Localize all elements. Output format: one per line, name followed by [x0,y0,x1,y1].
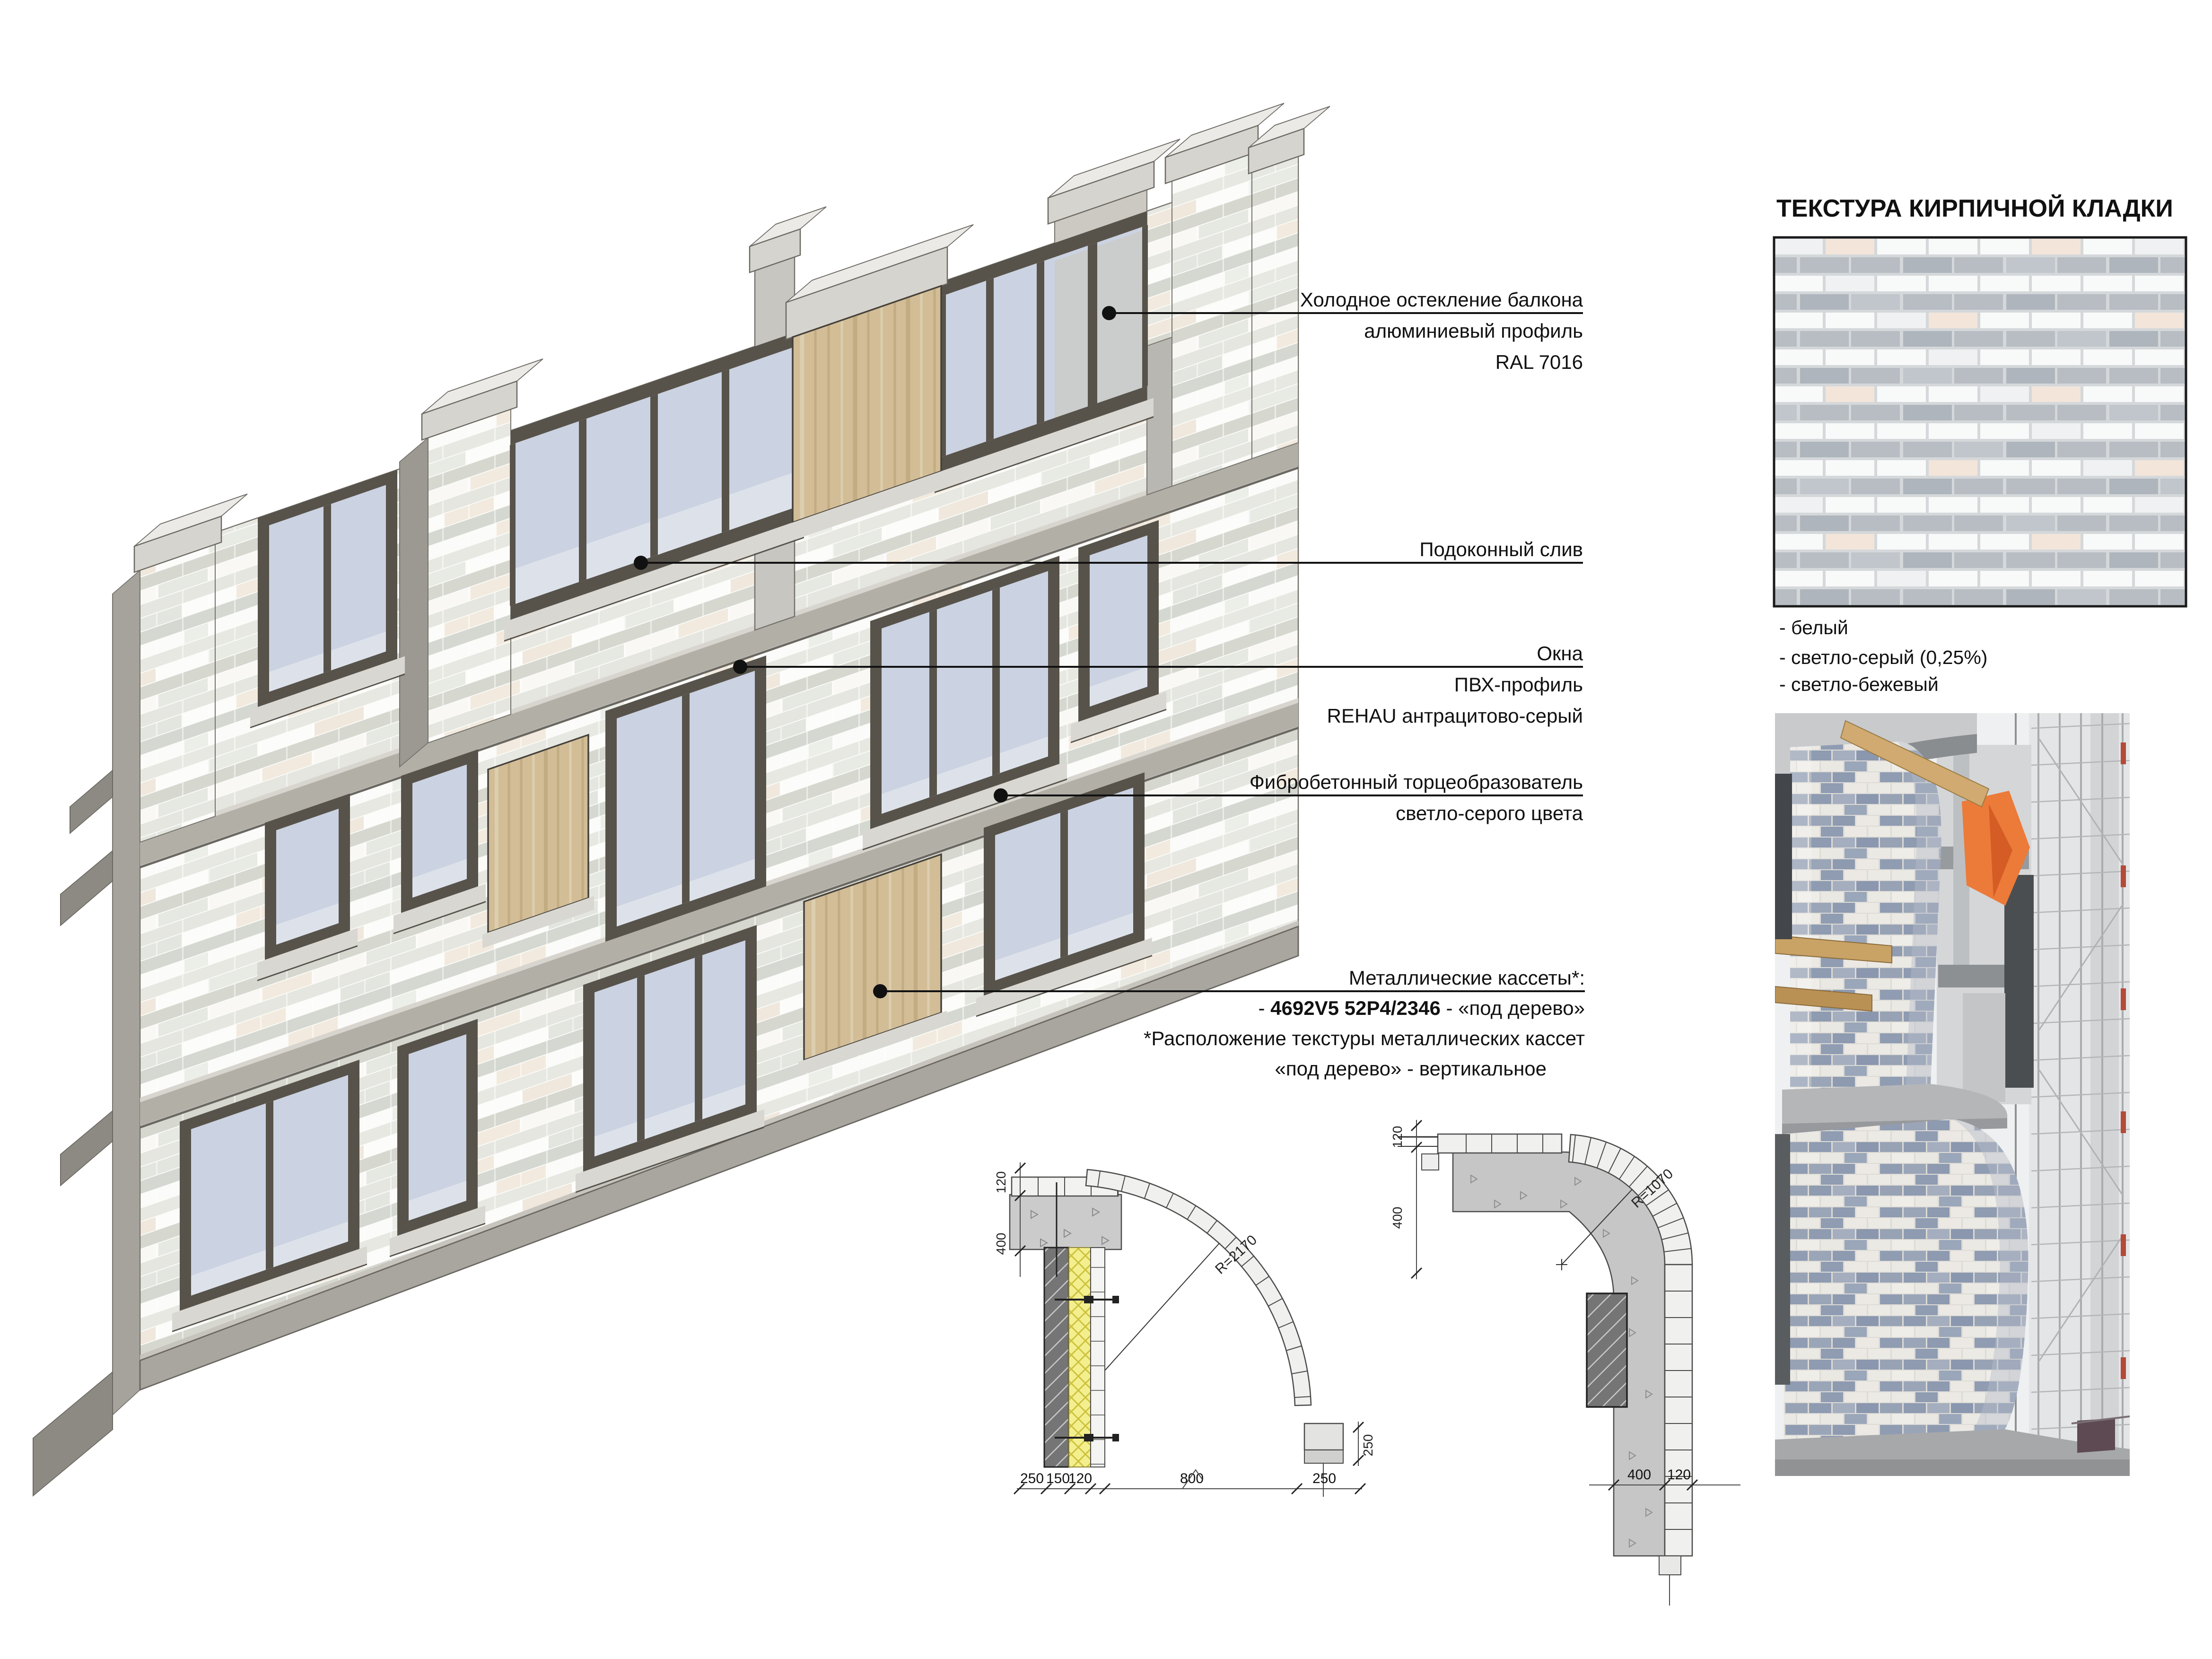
svg-text:400: 400 [1627,1467,1651,1483]
svg-text:- светло-серый (0,25%): - светло-серый (0,25%) [1779,646,1987,668]
svg-text:800: 800 [1180,1471,1204,1486]
svg-text:Подоконный слив: Подоконный слив [1419,538,1583,560]
svg-text:Окна: Окна [1537,642,1583,664]
svg-text:400: 400 [994,1233,1008,1255]
svg-text:Металлические кассеты*:: Металлические кассеты*: [1349,967,1585,989]
svg-text:- светло-бежевый: - светло-бежевый [1779,673,1939,695]
svg-text:*Расположение текстуры металли: *Расположение текстуры металлических кас… [1144,1027,1585,1049]
svg-text:- 4692V5 52P4/2346 - «под дере: - 4692V5 52P4/2346 - «под дерево» [1258,997,1585,1019]
svg-text:Холодное остекление балкона: Холодное остекление балкона [1300,288,1583,311]
svg-text:250: 250 [1361,1434,1375,1457]
svg-text:ПВХ-профиль: ПВХ-профиль [1454,673,1583,696]
svg-text:120: 120 [1068,1471,1092,1486]
svg-text:120: 120 [1390,1126,1405,1148]
svg-text:RAL 7016: RAL 7016 [1495,351,1583,373]
svg-text:150: 150 [1046,1471,1070,1486]
svg-text:250: 250 [1312,1471,1336,1486]
svg-text:120: 120 [1667,1467,1691,1483]
svg-text:«под дерево» - вертикальное: «под дерево» - вертикальное [1275,1057,1547,1080]
svg-text:светло-серого цвета: светло-серого цвета [1396,802,1583,824]
svg-text:120: 120 [994,1171,1008,1194]
svg-text:REHAU антрацитово-серый: REHAU антрацитово-серый [1327,705,1583,727]
svg-text:алюминиевый профиль: алюминиевый профиль [1364,320,1583,342]
svg-text:Фибробетонный торцеобразовател: Фибробетонный торцеобразователь [1250,771,1583,793]
svg-text:- белый: - белый [1779,617,1848,638]
svg-text:ТЕКСТУРА КИРПИЧНОЙ КЛАДКИ: ТЕКСТУРА КИРПИЧНОЙ КЛАДКИ [1776,194,2173,222]
svg-text:400: 400 [1390,1207,1405,1229]
svg-text:250: 250 [1020,1471,1044,1486]
